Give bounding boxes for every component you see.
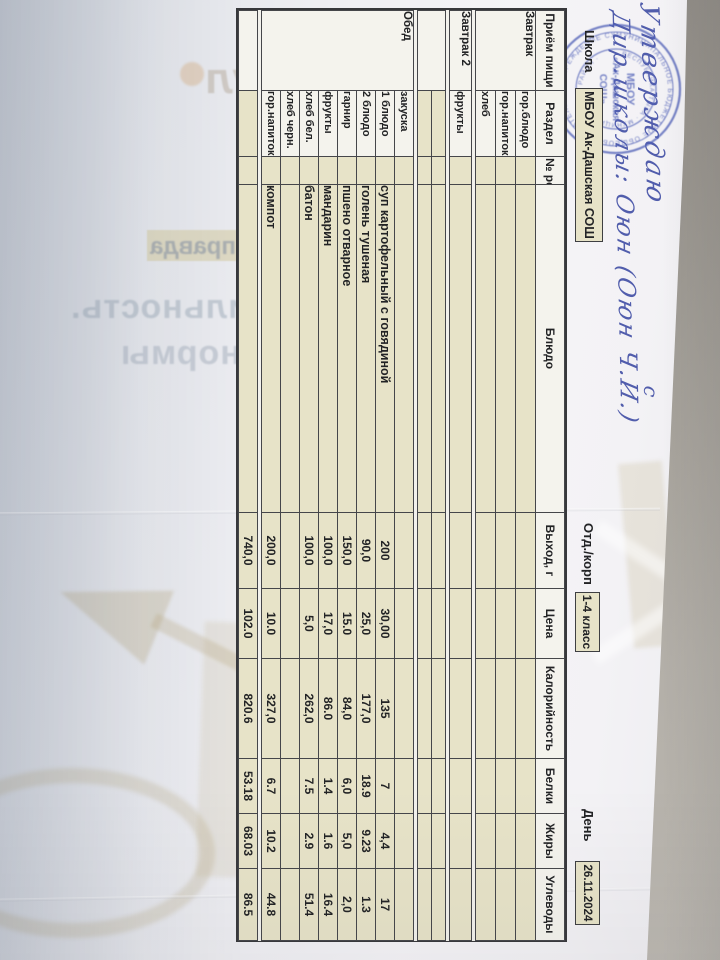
table-row: Завтрак 2 фрукты — [450, 11, 472, 941]
empty-cell — [516, 513, 536, 589]
empty-cell — [432, 814, 446, 869]
total-fat-cell: 68.03 — [239, 814, 258, 869]
showthrough-bar-shape — [618, 460, 678, 648]
table-row — [432, 11, 446, 941]
protein-cell — [281, 759, 300, 814]
table-row: хлеб — [476, 11, 496, 941]
document-content: Утверждаю Дир.школы: Оюн (Оюн Ч.И.) с МУ… — [235, 8, 605, 948]
header-row: Приём пищи Раздел № рец. Блюдо Выход, г … — [536, 11, 565, 941]
school-value-box: МБОУ Ак-Дашская СОШ — [575, 88, 603, 242]
section-divider — [472, 11, 476, 941]
calories-cell — [281, 659, 300, 759]
empty-cell — [496, 513, 516, 589]
menu-table: Приём пищи Раздел № рец. Блюдо Выход, г … — [238, 10, 565, 941]
empty-cell — [496, 759, 516, 814]
calories-cell: 86.0 — [319, 659, 338, 759]
breakfast-section: Завтрак гор.блюдо гор.напиток хлеб — [472, 11, 536, 941]
empty-cell — [450, 185, 472, 513]
table-row: гор.напиток — [496, 11, 516, 941]
empty-cell — [432, 513, 446, 589]
price-cell: 25,0 — [357, 589, 376, 659]
empty-cell — [516, 814, 536, 869]
empty-cell — [319, 157, 338, 185]
empty-cell — [496, 659, 516, 759]
section-cell: гор.напиток — [262, 91, 281, 157]
empty-cell — [395, 157, 414, 185]
empty-cell — [450, 157, 472, 185]
empty-cell — [516, 659, 536, 759]
fat-cell: 2.9 — [300, 814, 319, 869]
total-carbs-cell: 86.5 — [239, 869, 258, 941]
empty-cell — [418, 513, 432, 589]
fat-cell: 9.23 — [357, 814, 376, 869]
protein-cell — [395, 759, 414, 814]
empty-cell — [496, 589, 516, 659]
section-cell: гор.напиток — [496, 91, 516, 157]
meal-name-cell — [418, 11, 446, 91]
empty-cell — [418, 91, 432, 157]
showthrough-loop-shape — [0, 768, 215, 938]
protein-cell: 7.5 — [300, 759, 319, 814]
meal-name-cell: Завтрак 2 — [450, 11, 472, 91]
output-cell: 100,0 — [319, 513, 338, 589]
price-cell: 5,0 — [300, 589, 319, 659]
empty-cell — [516, 157, 536, 185]
fat-cell: 10.2 — [262, 814, 281, 869]
table-row: гарнир пшено отварное 150,0 15.0 84,0 6,… — [338, 11, 357, 941]
col-header-meal: Приём пищи — [536, 11, 565, 91]
empty-cell — [516, 185, 536, 513]
carbs-cell: 2,0 — [338, 869, 357, 941]
price-cell: 10.0 — [262, 589, 281, 659]
meal-name-cell: Завтрак — [476, 11, 536, 91]
calories-cell: 84,0 — [338, 659, 357, 759]
col-header-protein: Белки — [536, 759, 565, 814]
table-row: 2 блюдо голень тушеная 90,0 25,0 177,0 1… — [357, 11, 376, 941]
empty-cell — [476, 814, 496, 869]
col-header-carbs: Углеводы — [536, 869, 565, 941]
protein-cell: 6,0 — [338, 759, 357, 814]
section-cell: хлеб бел. — [300, 91, 319, 157]
calories-cell: 135 — [376, 659, 395, 759]
empty-cell — [432, 157, 446, 185]
output-cell — [395, 513, 414, 589]
output-cell — [281, 513, 300, 589]
empty-cell — [450, 659, 472, 759]
price-cell — [395, 589, 414, 659]
empty-cell — [476, 185, 496, 513]
price-cell: 17,0 — [319, 589, 338, 659]
meal-name-cell: Обед — [262, 11, 414, 91]
section-divider — [414, 11, 418, 941]
protein-cell: 7 — [376, 759, 395, 814]
menu-table-border: Приём пищи Раздел № рец. Блюдо Выход, г … — [236, 8, 567, 942]
empty-cell — [432, 759, 446, 814]
total-output-cell: 740,0 — [239, 513, 258, 589]
calories-cell — [395, 659, 414, 759]
carbs-cell: 17 — [376, 869, 395, 941]
calories-cell: 262,0 — [300, 659, 319, 759]
carbs-cell: 44.8 — [262, 869, 281, 941]
empty-cell — [239, 185, 258, 513]
dish-cell: батон — [300, 185, 319, 513]
dish-cell: суп картофельный с говядиной — [376, 185, 395, 513]
empty-cell — [418, 659, 432, 759]
table-row — [418, 11, 432, 941]
section-cell: хлеб — [476, 91, 496, 157]
showthrough-highlight-box — [147, 230, 241, 261]
empty-cell — [496, 869, 516, 941]
empty-cell — [432, 869, 446, 941]
dish-cell: голень тушеная — [357, 185, 376, 513]
empty-cell — [450, 513, 472, 589]
empty-cell — [476, 659, 496, 759]
section-divider — [446, 11, 450, 941]
lunch-section: Обед закуска 1 блюдо суп картофельный с … — [258, 11, 414, 941]
section-cell: гарнир — [338, 91, 357, 157]
output-cell: 100,0 — [300, 513, 319, 589]
empty-cell — [450, 869, 472, 941]
unused-meal-section — [414, 11, 446, 941]
empty-cell — [418, 869, 432, 941]
showthrough-arrow-icon — [47, 551, 174, 665]
fat-cell: 1.6 — [319, 814, 338, 869]
output-cell: 200 — [376, 513, 395, 589]
showthrough-logo-icon — [180, 62, 204, 86]
empty-cell — [476, 869, 496, 941]
table-row: хлеб черн. — [281, 11, 300, 941]
empty-cell — [450, 589, 472, 659]
output-cell: 150,0 — [338, 513, 357, 589]
table-row: Обед закуска — [395, 11, 414, 941]
carbs-cell — [281, 869, 300, 941]
empty-cell — [300, 157, 319, 185]
output-cell: 200,0 — [262, 513, 281, 589]
day-value-box: 26.11.2024 — [575, 861, 600, 925]
fat-cell — [395, 814, 414, 869]
empty-cell — [418, 759, 432, 814]
section-cell: хлеб черн. — [281, 91, 300, 157]
fat-cell: 4,4 — [376, 814, 395, 869]
section-cell: 2 блюдо — [357, 91, 376, 157]
carbs-cell: 1.3 — [357, 869, 376, 941]
total-section: 740,0 102.0 820.6 53.18 68.03 86.5 — [239, 11, 258, 941]
empty-cell — [516, 759, 536, 814]
section-divider — [258, 11, 262, 941]
fat-cell: 5,0 — [338, 814, 357, 869]
dept-value-box: 1-4 класс — [575, 592, 600, 652]
empty-cell — [338, 157, 357, 185]
empty-cell — [418, 185, 432, 513]
table-row: фрукты мандарин 100,0 17,0 86.0 1.4 1.6 … — [319, 11, 338, 941]
total-calories-cell: 820.6 — [239, 659, 258, 759]
section-cell: фрукты — [319, 91, 338, 157]
section-cell: гор.блюдо — [516, 91, 536, 157]
price-cell — [281, 589, 300, 659]
glare-mark — [594, 521, 703, 599]
empty-cell — [450, 814, 472, 869]
empty-cell — [476, 513, 496, 589]
empty-cell — [432, 185, 446, 513]
empty-cell — [476, 157, 496, 185]
empty-cell — [418, 589, 432, 659]
table-row: хлеб бел. батон 100,0 5,0 262,0 7.5 2.9 … — [300, 11, 319, 941]
price-cell: 30,00 — [376, 589, 395, 659]
empty-cell — [450, 759, 472, 814]
protein-cell: 18.9 — [357, 759, 376, 814]
calories-cell: 177,0 — [357, 659, 376, 759]
empty-cell — [496, 157, 516, 185]
empty-cell — [476, 589, 496, 659]
col-header-section: Раздел — [536, 91, 565, 157]
day-label: День — [581, 809, 596, 842]
col-header-recipe: № рец. — [536, 157, 565, 185]
empty-cell — [418, 157, 432, 185]
dish-cell — [281, 185, 300, 513]
empty-cell — [432, 91, 446, 157]
empty-cell — [239, 157, 258, 185]
total-row: 740,0 102.0 820.6 53.18 68.03 86.5 — [239, 11, 258, 941]
carbs-cell: 51.4 — [300, 869, 319, 941]
section-cell: закуска — [395, 91, 414, 157]
fat-cell — [281, 814, 300, 869]
total-price-cell: 102.0 — [239, 589, 258, 659]
calories-cell: 327,0 — [262, 659, 281, 759]
dept-label: Отд./корп — [581, 523, 596, 585]
table-row: Завтрак гор.блюдо — [516, 11, 536, 941]
empty-cell — [516, 869, 536, 941]
empty-cell — [476, 759, 496, 814]
price-cell: 15.0 — [338, 589, 357, 659]
protein-cell: 6.7 — [262, 759, 281, 814]
total-protein-cell: 53.18 — [239, 759, 258, 814]
empty-cell — [357, 157, 376, 185]
empty-cell — [418, 814, 432, 869]
table-row: гор.напиток компот 200,0 10.0 327,0 6.7 … — [262, 11, 281, 941]
col-header-fat: Жиры — [536, 814, 565, 869]
dish-cell: компот — [262, 185, 281, 513]
glare-mark — [591, 587, 700, 665]
empty-cell — [239, 91, 258, 157]
empty-cell — [281, 157, 300, 185]
meal-name-cell — [239, 11, 258, 91]
stamp-center-line2: «Ак-Дашская — [610, 57, 621, 121]
output-cell: 90,0 — [357, 513, 376, 589]
empty-cell — [376, 157, 395, 185]
section-cell: фрукты — [450, 91, 472, 157]
dish-cell — [395, 185, 414, 513]
col-header-calories: Калорийность — [536, 659, 565, 759]
section-cell: 1 блюдо — [376, 91, 395, 157]
col-header-output: Выход, г — [536, 513, 565, 589]
protein-cell: 1.4 — [319, 759, 338, 814]
school-label: Школа — [582, 30, 597, 73]
stamp-center-line1: МБОУ — [624, 73, 636, 105]
dish-cell: пшено отварное — [338, 185, 357, 513]
empty-cell — [432, 659, 446, 759]
empty-cell — [496, 185, 516, 513]
table-row: 1 блюдо суп картофельный с говядиной 200… — [376, 11, 395, 941]
empty-cell — [516, 589, 536, 659]
dish-cell: мандарин — [319, 185, 338, 513]
carbs-cell — [395, 869, 414, 941]
empty-cell — [496, 814, 516, 869]
breakfast2-section: Завтрак 2 фрукты — [446, 11, 472, 941]
photographed-menu-document: Умскул правда Социальная мобильность. Ко… — [0, 0, 720, 960]
empty-cell — [262, 157, 281, 185]
col-header-dish: Блюдо — [536, 185, 565, 513]
carbs-cell: 16.4 — [319, 869, 338, 941]
empty-cell — [432, 589, 446, 659]
col-header-price: Цена — [536, 589, 565, 659]
